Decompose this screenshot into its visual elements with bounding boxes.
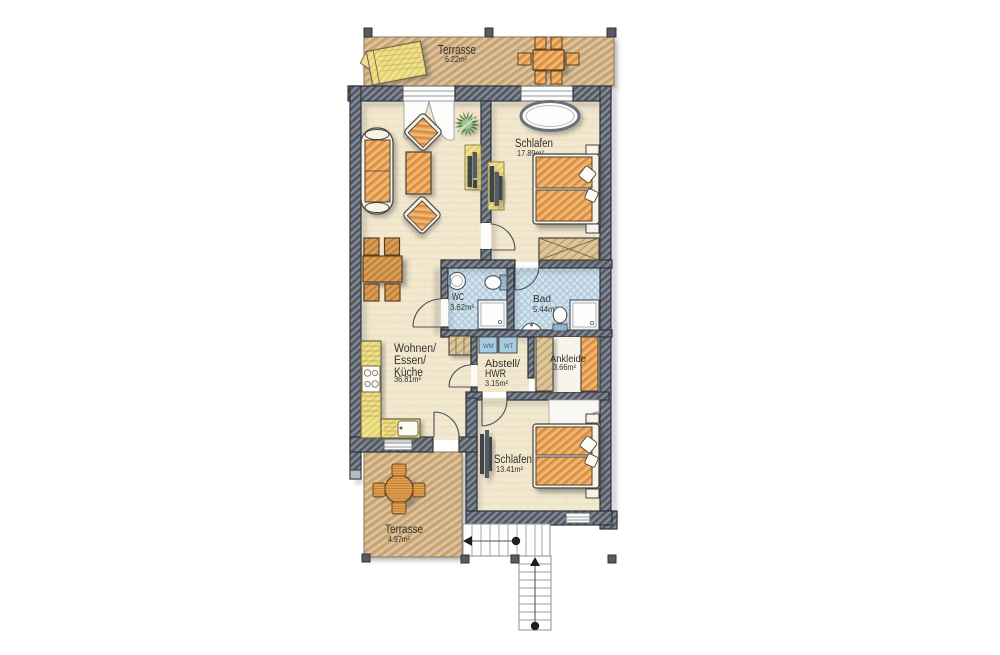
- svg-text:6.22m²: 6.22m²: [445, 55, 467, 64]
- svg-text:Essen/: Essen/: [394, 355, 427, 367]
- svg-text:4.97m²: 4.97m²: [388, 535, 410, 544]
- svg-text:WC: WC: [452, 291, 464, 303]
- svg-text:Bad: Bad: [533, 293, 551, 305]
- svg-text:WM: WM: [483, 344, 494, 350]
- svg-text:3.62m²: 3.62m²: [450, 303, 474, 312]
- svg-text:Wohnen/: Wohnen/: [394, 343, 437, 355]
- svg-text:3.66m²: 3.66m²: [553, 363, 576, 372]
- svg-text:36.81m²: 36.81m²: [394, 375, 421, 384]
- svg-text:13.41m²: 13.41m²: [496, 465, 523, 474]
- svg-text:WT: WT: [504, 344, 514, 350]
- svg-text:3.15m²: 3.15m²: [485, 379, 508, 388]
